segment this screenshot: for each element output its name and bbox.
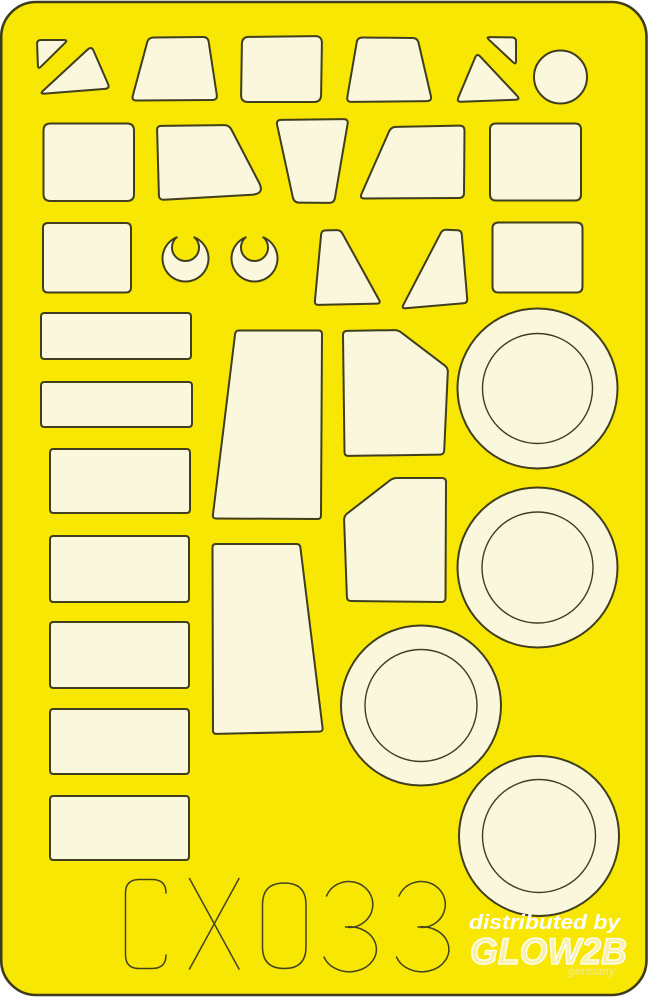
svg-text:germany: germany	[567, 964, 616, 978]
